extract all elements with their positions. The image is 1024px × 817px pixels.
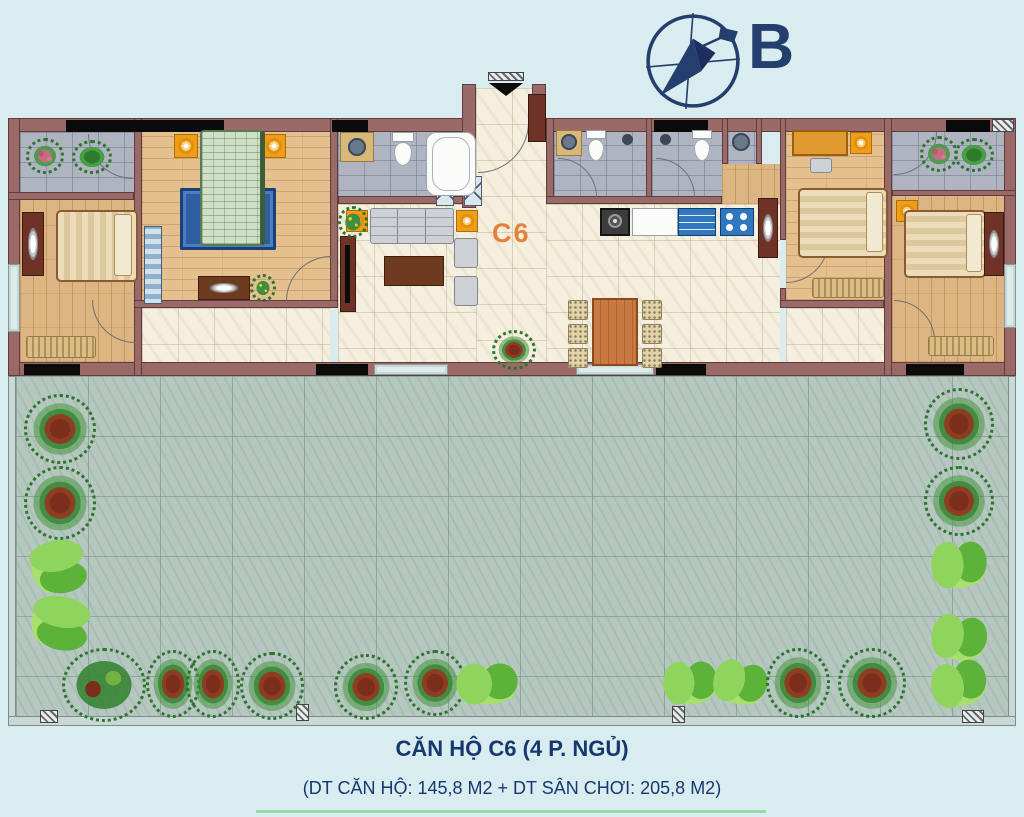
- dining-chair: [642, 324, 662, 344]
- toilet-tank-bath1: [392, 132, 414, 142]
- pillow-bedroom4: [966, 214, 982, 272]
- bathtub: [426, 132, 476, 196]
- sideboard-mirror: [763, 214, 773, 242]
- wall-right: [1004, 118, 1016, 376]
- wardrobe-bedroom2: [144, 226, 162, 304]
- terrace-drain-4: [962, 710, 984, 723]
- toilet-tank-bath2: [586, 130, 606, 139]
- sink-icon: [348, 138, 366, 156]
- bed-bedroom2: [200, 130, 265, 246]
- toilet-tank-bath3: [692, 130, 712, 139]
- corridor-left-floor: [142, 308, 330, 362]
- wall-bath2-bath3: [646, 118, 652, 204]
- side-table-right: [456, 210, 478, 232]
- desk-bedroom3: [792, 130, 848, 156]
- window-black-bath1: [332, 120, 368, 132]
- wall-hall-bath2: [546, 118, 554, 204]
- oven-burner: [608, 214, 622, 228]
- dining-chair: [568, 300, 588, 320]
- burner-icon: [740, 224, 747, 231]
- pillow-bedroom3: [866, 192, 883, 252]
- wall-balcony-left: [8, 192, 134, 200]
- wall-baths-bottom: [546, 196, 722, 204]
- bench-bedroom1: [26, 336, 96, 358]
- corridor-right-floor: [786, 308, 884, 362]
- lamp-icon: [178, 138, 194, 154]
- terrace-drain-1: [40, 710, 58, 723]
- wardrobe-bedroom1: [22, 212, 44, 276]
- window-black-bottom2: [316, 364, 368, 375]
- shower-icon: [660, 134, 671, 145]
- wall-bath3-nook: [722, 118, 728, 164]
- vanity-bathroom2: [556, 130, 582, 156]
- desk-chair-bedroom3: [810, 158, 832, 173]
- window-black-bottom3: [656, 364, 706, 375]
- plan-title: CĂN HỘ C6 (4 P. NGỦ): [0, 736, 1024, 762]
- wardrobe-mirror: [989, 230, 999, 258]
- sink-icon: [561, 134, 577, 150]
- oven: [600, 208, 630, 236]
- lamp-icon: [460, 214, 474, 228]
- wall-bed2-bath1: [330, 118, 338, 308]
- window-x-corner: [992, 119, 1014, 132]
- desk-bedroom2: [198, 276, 250, 300]
- wall-bath1-bottom: [338, 196, 478, 204]
- coffee-table: [384, 256, 444, 286]
- lamp-icon: [266, 138, 282, 154]
- terrace-wall-right: [1008, 376, 1016, 724]
- window-bottom1: [374, 364, 448, 375]
- wall-bed3-bottom: [780, 300, 884, 308]
- pillow-bedroom1: [114, 214, 132, 276]
- sideboard: [758, 198, 778, 258]
- tv-cabinet: [340, 236, 356, 312]
- terrace-wall-bottom: [8, 716, 1016, 726]
- burner-icon: [726, 213, 733, 220]
- wall-lamp-bedroom3: [850, 132, 872, 154]
- terrace-drain-3: [672, 706, 685, 723]
- window-black-bottom1: [24, 364, 80, 375]
- lamp-icon: [854, 136, 868, 150]
- dining-table: [592, 298, 638, 366]
- terrace-wall-left: [8, 376, 16, 724]
- dining-chair: [642, 348, 662, 368]
- cooktop: [720, 208, 754, 236]
- terrace-drain-2: [296, 704, 309, 721]
- wall-left: [8, 118, 20, 376]
- sofa: [370, 208, 454, 244]
- wardrobe-bedroom4: [984, 212, 1004, 276]
- wall-nook-right: [756, 118, 762, 164]
- wall-balcony-right: [892, 190, 1016, 196]
- armchair-1: [454, 238, 478, 268]
- bathtub-inner: [432, 137, 470, 191]
- window-left-wall: [8, 264, 20, 332]
- kitchen-sink-unit: [678, 208, 716, 236]
- compass-label: B: [748, 14, 794, 78]
- side-table-left: [346, 210, 368, 232]
- wall-kitchen-bed3-upper: [780, 118, 786, 240]
- sink-icon: [732, 133, 750, 151]
- kitchen-counter: [632, 208, 678, 236]
- entry-threshold: [488, 72, 524, 81]
- plan-subtitle: (DT CĂN HỘ: 145,8 M2 + DT SÂN CHƠI: 205,…: [0, 778, 1024, 799]
- wall-bed2-bottom: [134, 300, 338, 308]
- vanity-bathroom1: [340, 132, 374, 162]
- wardrobe-mirror: [28, 228, 38, 260]
- nightstand-left: [174, 134, 198, 158]
- unit-label: C6: [492, 218, 531, 249]
- tv-icon: [345, 245, 350, 303]
- entry-arrow-icon: [489, 83, 523, 96]
- floorplan-canvas: B: [0, 0, 1024, 817]
- window-black-balcony-right: [946, 120, 990, 132]
- burner-icon: [726, 224, 733, 231]
- bench-bedroom4: [928, 336, 994, 356]
- dining-chair: [568, 348, 588, 368]
- lamp-icon: [350, 214, 364, 228]
- burner-icon: [740, 213, 747, 220]
- footer-underline: [256, 810, 766, 813]
- shower-icon: [622, 134, 633, 145]
- desk-screen: [210, 283, 238, 293]
- shoe-cabinet: [528, 94, 546, 142]
- wall-bottom: [8, 362, 1016, 376]
- window-black-bottom4: [906, 364, 964, 375]
- dining-chair: [568, 324, 588, 344]
- bench-bedroom3: [812, 278, 884, 298]
- nightstand-right: [262, 134, 286, 158]
- window-right-wall: [1004, 264, 1016, 328]
- terrace-floor: [16, 376, 1008, 716]
- armchair-2: [454, 276, 478, 306]
- dining-chair: [642, 300, 662, 320]
- compass-north-icon: [642, 10, 744, 112]
